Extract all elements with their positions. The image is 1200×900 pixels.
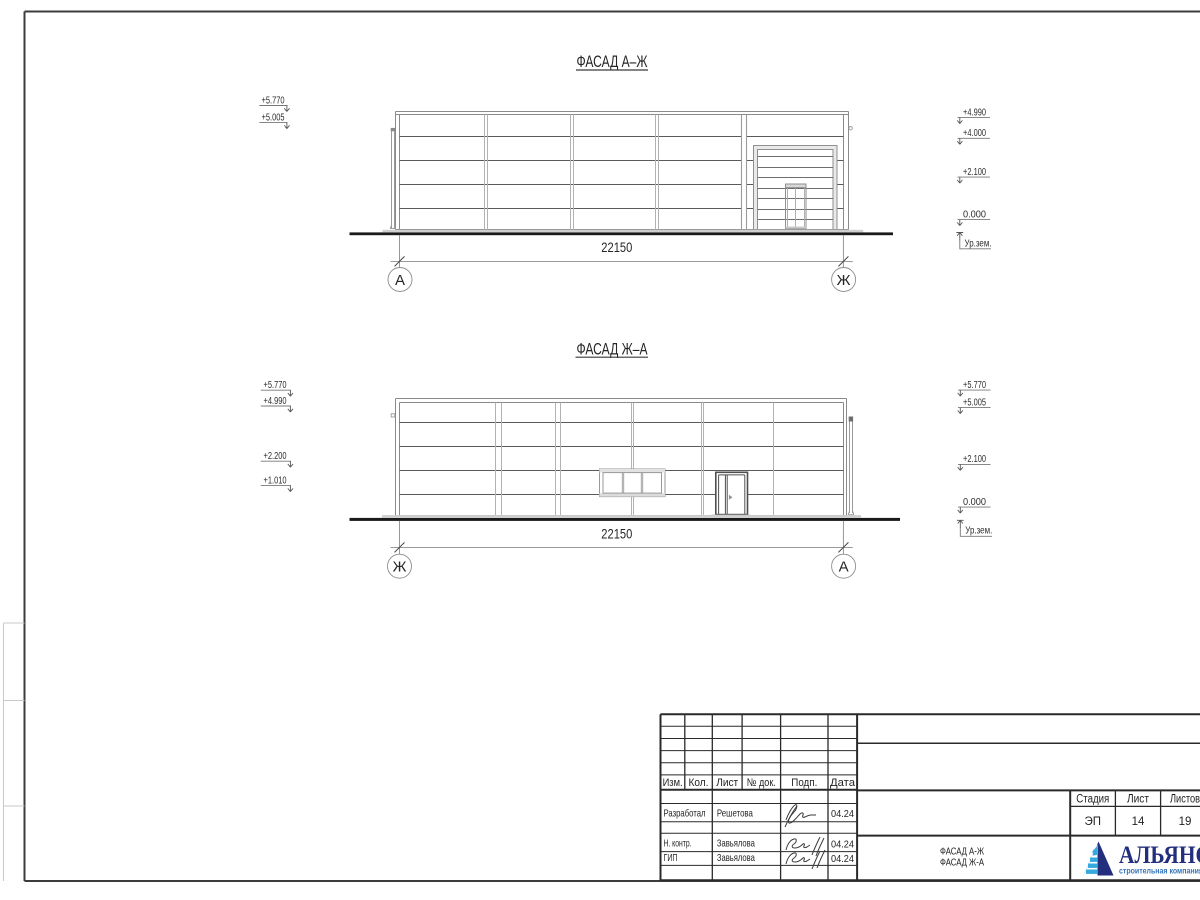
svg-text:ФАСАД А–Ж: ФАСАД А–Ж — [577, 52, 648, 71]
svg-text:14: 14 — [1132, 816, 1145, 828]
svg-text:04.24: 04.24 — [831, 808, 854, 820]
svg-text:ФАСАД А-Ж: ФАСАД А-Ж — [940, 847, 985, 858]
svg-text:строительная компания: строительная компания — [1119, 866, 1200, 876]
svg-text:Ур.зем.: Ур.зем. — [965, 238, 992, 249]
svg-text:04.24: 04.24 — [831, 839, 854, 851]
svg-text:Изм.: Изм. — [663, 777, 683, 789]
svg-text:А: А — [839, 559, 849, 576]
svg-text:Дата: Дата — [830, 777, 856, 789]
svg-text:ЭП: ЭП — [1085, 816, 1102, 828]
svg-text:ФАСАД Ж–А: ФАСАД Ж–А — [577, 339, 649, 358]
svg-text:+4.990: +4.990 — [963, 107, 986, 118]
svg-text:Стадия: Стадия — [1076, 794, 1109, 806]
svg-text:Лист: Лист — [1127, 794, 1150, 806]
svg-text:22150: 22150 — [601, 527, 632, 542]
svg-text:Подп.: Подп. — [791, 777, 817, 789]
svg-text:Кол.: Кол. — [689, 777, 709, 789]
svg-text:Лист: Лист — [716, 777, 738, 789]
svg-text:+4.000: +4.000 — [963, 128, 986, 139]
svg-text:+2.100: +2.100 — [963, 167, 986, 178]
svg-text:+5.005: +5.005 — [963, 397, 986, 408]
svg-text:+5.770: +5.770 — [264, 380, 287, 391]
svg-text:Разработал: Разработал — [664, 808, 706, 820]
svg-text:Завьялова: Завьялова — [717, 852, 755, 864]
svg-text:А: А — [395, 272, 405, 289]
svg-text:04.24: 04.24 — [831, 853, 854, 865]
svg-text:Ж: Ж — [837, 272, 851, 289]
svg-text:+5.005: +5.005 — [262, 112, 285, 123]
svg-text:+1.010: +1.010 — [264, 475, 287, 486]
svg-text:№ док.: № док. — [747, 777, 776, 789]
svg-text:19: 19 — [1179, 816, 1192, 828]
svg-text:Решетова: Решетова — [717, 808, 753, 820]
svg-text:0.000: 0.000 — [963, 209, 986, 220]
svg-text:ГИП: ГИП — [664, 852, 678, 864]
svg-text:+2.100: +2.100 — [963, 454, 986, 465]
svg-text:Завьялова: Завьялова — [717, 838, 755, 850]
svg-text:+4.990: +4.990 — [264, 396, 287, 407]
svg-text:+5.770: +5.770 — [963, 380, 986, 391]
svg-text:Листов: Листов — [1170, 794, 1200, 806]
svg-text:+2.200: +2.200 — [264, 451, 287, 462]
svg-text:Ур.зем.: Ур.зем. — [965, 526, 992, 537]
svg-text:Ж: Ж — [393, 559, 407, 576]
svg-text:+5.770: +5.770 — [262, 95, 285, 106]
svg-text:Н. контр.: Н. контр. — [664, 838, 692, 850]
svg-text:22150: 22150 — [601, 240, 632, 255]
svg-text:0.000: 0.000 — [963, 497, 986, 508]
svg-text:ФАСАД Ж-А: ФАСАД Ж-А — [940, 858, 984, 869]
